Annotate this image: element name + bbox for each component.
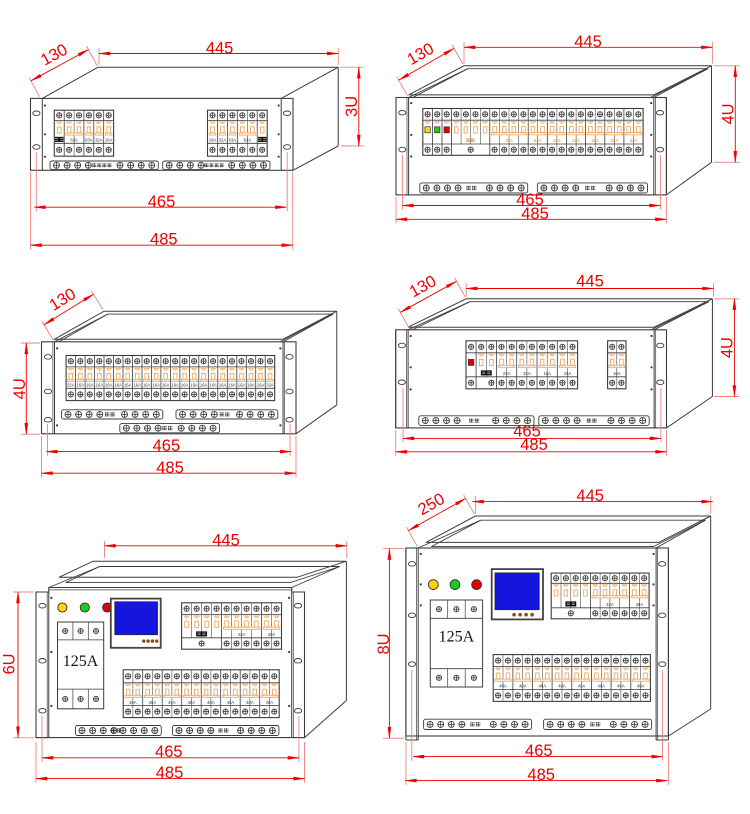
svg-text:63A: 63A [70,138,78,143]
svg-text:40A: 40A [636,602,644,607]
svg-text:16A: 16A [77,383,85,388]
svg-text:16A: 16A [238,383,246,388]
svg-text:16A: 16A [152,383,160,388]
svg-text:16A: 16A [209,138,217,143]
svg-text:63A: 63A [85,138,93,143]
svg-text:40A: 40A [578,684,586,689]
svg-text:40A: 40A [207,700,215,705]
svg-text:40A: 40A [519,684,527,689]
svg-text:32A: 32A [95,138,103,143]
svg-text:40A: 40A [499,684,507,689]
svg-text:485: 485 [156,459,184,477]
svg-text:40A: 40A [246,700,254,705]
svg-text:16A: 16A [86,383,94,388]
svg-text:125A: 125A [439,629,475,646]
svg-text:16A: 16A [190,383,198,388]
svg-text:16A: 16A [133,383,141,388]
svg-text:32A: 32A [606,602,614,607]
svg-text:465: 465 [525,742,553,760]
svg-text:16A: 16A [124,383,132,388]
svg-text:465: 465 [148,193,176,211]
svg-text:4U: 4U [11,378,29,399]
svg-text:445: 445 [574,33,602,51]
svg-text:16A: 16A [162,383,170,388]
svg-text:32A: 32A [572,138,580,143]
svg-text:16A: 16A [613,371,621,376]
svg-text:485: 485 [527,766,555,784]
svg-text:63A: 63A [534,138,542,143]
svg-text:8U: 8U [375,633,393,654]
svg-text:485: 485 [150,231,178,249]
svg-text:40A: 40A [188,700,196,705]
svg-text:32A: 32A [523,371,531,376]
svg-text:3U: 3U [343,96,361,117]
svg-text:16A: 16A [209,383,217,388]
svg-text:23A: 23A [503,371,511,376]
svg-text:16A: 16A [105,138,113,143]
svg-text:445: 445 [576,487,604,505]
svg-text:32A: 32A [219,138,227,143]
svg-text:445: 445 [576,273,604,291]
svg-text:32A: 32A [266,383,274,388]
svg-text:4U: 4U [719,103,737,124]
svg-text:32A: 32A [505,138,513,143]
svg-text:32A: 32A [553,138,561,143]
svg-text:485: 485 [521,205,549,223]
svg-text:16A: 16A [200,383,208,388]
svg-text:16A: 16A [257,383,265,388]
svg-text:465: 465 [153,437,181,455]
svg-text:485: 485 [156,764,184,782]
svg-text:40A: 40A [168,700,176,705]
svg-text:63A: 63A [229,138,237,143]
svg-text:16A: 16A [143,383,151,388]
svg-text:32A: 32A [611,138,619,143]
svg-text:445: 445 [206,39,234,57]
svg-text:32A: 32A [238,632,246,637]
svg-text:485: 485 [520,436,548,454]
svg-text:40A: 40A [558,684,566,689]
svg-text:40A: 40A [598,684,606,689]
svg-text:16A: 16A [543,371,551,376]
svg-text:40A: 40A [266,700,274,705]
svg-text:32A: 32A [630,138,638,143]
svg-text:16A: 16A [228,383,236,388]
svg-text:32A: 32A [591,138,599,143]
svg-text:40A: 40A [268,632,276,637]
svg-text:16A: 16A [171,383,179,388]
svg-text:16A: 16A [219,383,227,388]
svg-text:40A: 40A [149,700,157,705]
svg-text:125A: 125A [63,653,99,670]
svg-text:4U: 4U [719,337,737,358]
svg-text:16A: 16A [564,371,572,376]
svg-text:40A: 40A [227,700,235,705]
svg-text:445: 445 [212,531,240,549]
svg-text:16A: 16A [105,383,113,388]
svg-text:63A: 63A [244,138,252,143]
svg-text:40A: 40A [539,684,547,689]
svg-text:16A: 16A [247,383,255,388]
svg-text:40A: 40A [617,684,625,689]
svg-text:6U: 6U [1,653,19,674]
svg-text:16A: 16A [181,383,189,388]
svg-text:16A: 16A [96,383,104,388]
svg-text:32A: 32A [67,383,75,388]
svg-text:465: 465 [155,743,183,761]
svg-text:40A: 40A [129,700,137,705]
svg-text:40A: 40A [637,684,645,689]
svg-text:16A: 16A [114,383,122,388]
